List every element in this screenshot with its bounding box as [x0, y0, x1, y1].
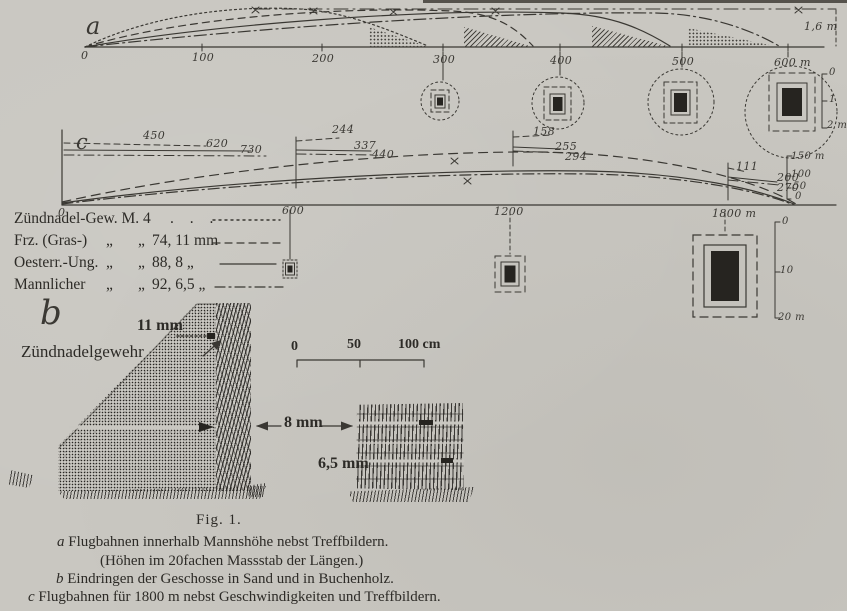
b-scale-0: 0	[291, 340, 298, 354]
diagram-c-label: c	[76, 132, 88, 153]
legend-ditto-1: „	[106, 276, 113, 294]
a-target-scale-2m: 2 m	[827, 121, 847, 131]
c-drop-scale-20m: 20 m	[778, 313, 805, 323]
a-target-scale-1: 1	[829, 95, 836, 105]
c-ordinate-150m: 150 m	[791, 152, 825, 162]
caption-marker-b: b	[56, 571, 64, 587]
legend-value: 88, 8 „	[152, 254, 194, 272]
b-rifle-arrowhead	[211, 340, 221, 350]
b-caliber-8mm-label: 8 mm	[284, 415, 323, 431]
a-tick-100: 100	[192, 52, 214, 63]
c-drop-scale-0: 0	[782, 217, 789, 227]
b-scale-100cm: 100 cm	[398, 338, 440, 352]
legend-ditto-2: „	[138, 232, 145, 250]
diagram-a-label: a	[86, 14, 100, 38]
caption-text-b: Eindringen der Geschosse in Sand und in …	[67, 571, 394, 587]
c-ordinate-0: 0	[795, 192, 802, 202]
legend-row-oesterr: Oesterr.-Ung. „ „ 88, 8 „	[14, 254, 294, 276]
b-scale-50: 50	[347, 338, 361, 352]
a-tick-300: 300	[433, 54, 455, 65]
legend-ditto-2: „	[138, 254, 145, 272]
b-11mm-bullet	[207, 333, 215, 339]
a-tick-0: 0	[81, 50, 88, 61]
legend-ditto-1: „	[106, 232, 113, 250]
legend-row-gras: Frz. (Gras-) „ „ 74, 11 mm	[14, 232, 294, 254]
b-caliber-11mm-label: 11 mm	[137, 318, 183, 334]
b-scale-bar	[297, 360, 424, 367]
a-target-connectors	[443, 52, 788, 80]
legend-ditto-1: „	[106, 254, 113, 272]
c-target-1200-fill	[505, 266, 516, 283]
figure-page: a 0 100 200 300 400 500 600 m 1,6 m 0 1 …	[0, 0, 847, 611]
a-tick-600m: 600 m	[774, 57, 811, 68]
a-man-height-label: 1,6 m	[804, 21, 837, 32]
caption-line-a: a Flugbahnen innerhalb Mannshöhe nebst T…	[57, 535, 388, 550]
c-velocity-600-mann: 440	[372, 149, 394, 160]
caption-line-c: c Flugbahnen für 1800 m nebst Geschwindi…	[28, 590, 441, 605]
a-trajectory-dashed	[85, 10, 533, 47]
legend-name: Frz. (Gras-)	[14, 232, 87, 250]
a-tick-500: 500	[672, 56, 694, 67]
legend-ditto-2: „	[138, 276, 145, 294]
legend-name: Oesterr.-Ung.	[14, 254, 98, 272]
diagram-b-label: b	[40, 296, 62, 330]
c-velocity-0-gras: 450	[143, 130, 165, 141]
c-velocity-0-oest: 620	[206, 138, 228, 149]
caption-text-c: Flugbahnen für 1800 m nebst Geschwindigk…	[38, 589, 440, 605]
b-block-bullet-2	[441, 458, 453, 463]
caption-line-hoehen: (Höhen im 20fachen Massstab der Längen.)	[100, 554, 363, 569]
legend-value: . . .	[170, 210, 219, 228]
legend-name: Zündnadel-Gew. M. 4	[14, 210, 151, 228]
a-target-500-fill	[674, 93, 687, 112]
a-trajectory-dashdot	[85, 13, 779, 47]
a-target-600-fill	[782, 88, 802, 116]
c-tick-1200: 1200	[494, 206, 524, 217]
caption-marker-c: c	[28, 589, 35, 605]
a-tick-400: 400	[550, 55, 572, 66]
caption-marker-a: a	[57, 534, 65, 550]
c-v0-solid	[64, 150, 251, 151]
caption-text-hoehen: (Höhen im 20fachen Massstab der Längen.)	[100, 553, 363, 569]
c-velocity-1800-gras: 111	[736, 161, 758, 172]
legend-name: Mannlicher	[14, 276, 85, 294]
legend-value: 74, 11 mm	[152, 232, 218, 250]
legend-value: 92, 6,5 „	[152, 276, 205, 294]
c-v0-dashdot	[64, 155, 266, 156]
b-rifle-label: Zündnadelgewehr	[21, 343, 144, 360]
c-tick-1800m: 1800 m	[712, 208, 756, 219]
c-b1800-dashdot	[728, 180, 779, 185]
a-trajectory-solid	[85, 12, 670, 47]
b-8mm-sand-arrow	[199, 422, 214, 432]
figure-number: Fig. 1.	[196, 513, 242, 528]
c-velocity-1200-gras: 158	[533, 126, 555, 137]
a-target-scale-0: 0	[829, 68, 836, 78]
c-b600-dashdot	[296, 154, 377, 155]
b-block-bullet-1	[419, 420, 433, 425]
a-target-400-fill	[553, 97, 563, 111]
c-velocity-0-mann: 730	[240, 144, 262, 155]
a-target-300-fill	[437, 98, 443, 106]
c-velocity-600-gras: 244	[332, 124, 354, 135]
b-caliber-65mm-label: 6,5 mm	[318, 456, 369, 472]
c-drop-scale-10: 10	[780, 266, 794, 276]
c-cross-marks	[451, 158, 471, 184]
scan-edge	[423, 0, 847, 3]
caption-text-a: Flugbahnen innerhalb Mannshöhe nebst Tre…	[68, 534, 388, 550]
caption-line-b: b Eindringen der Geschosse in Sand und i…	[56, 572, 394, 587]
c-velocity-1200-mann: 294	[565, 151, 587, 162]
c-b600-dashed	[296, 138, 339, 141]
c-ordinate-100: 100	[791, 170, 811, 180]
figure-linework	[0, 0, 847, 611]
c-b1200-solid	[513, 147, 561, 149]
legend-row-zuendnadel: Zündnadel-Gew. M. 4 . . .	[14, 210, 294, 232]
a-tick-200: 200	[312, 53, 334, 64]
c-target-1800-fill	[711, 251, 739, 301]
